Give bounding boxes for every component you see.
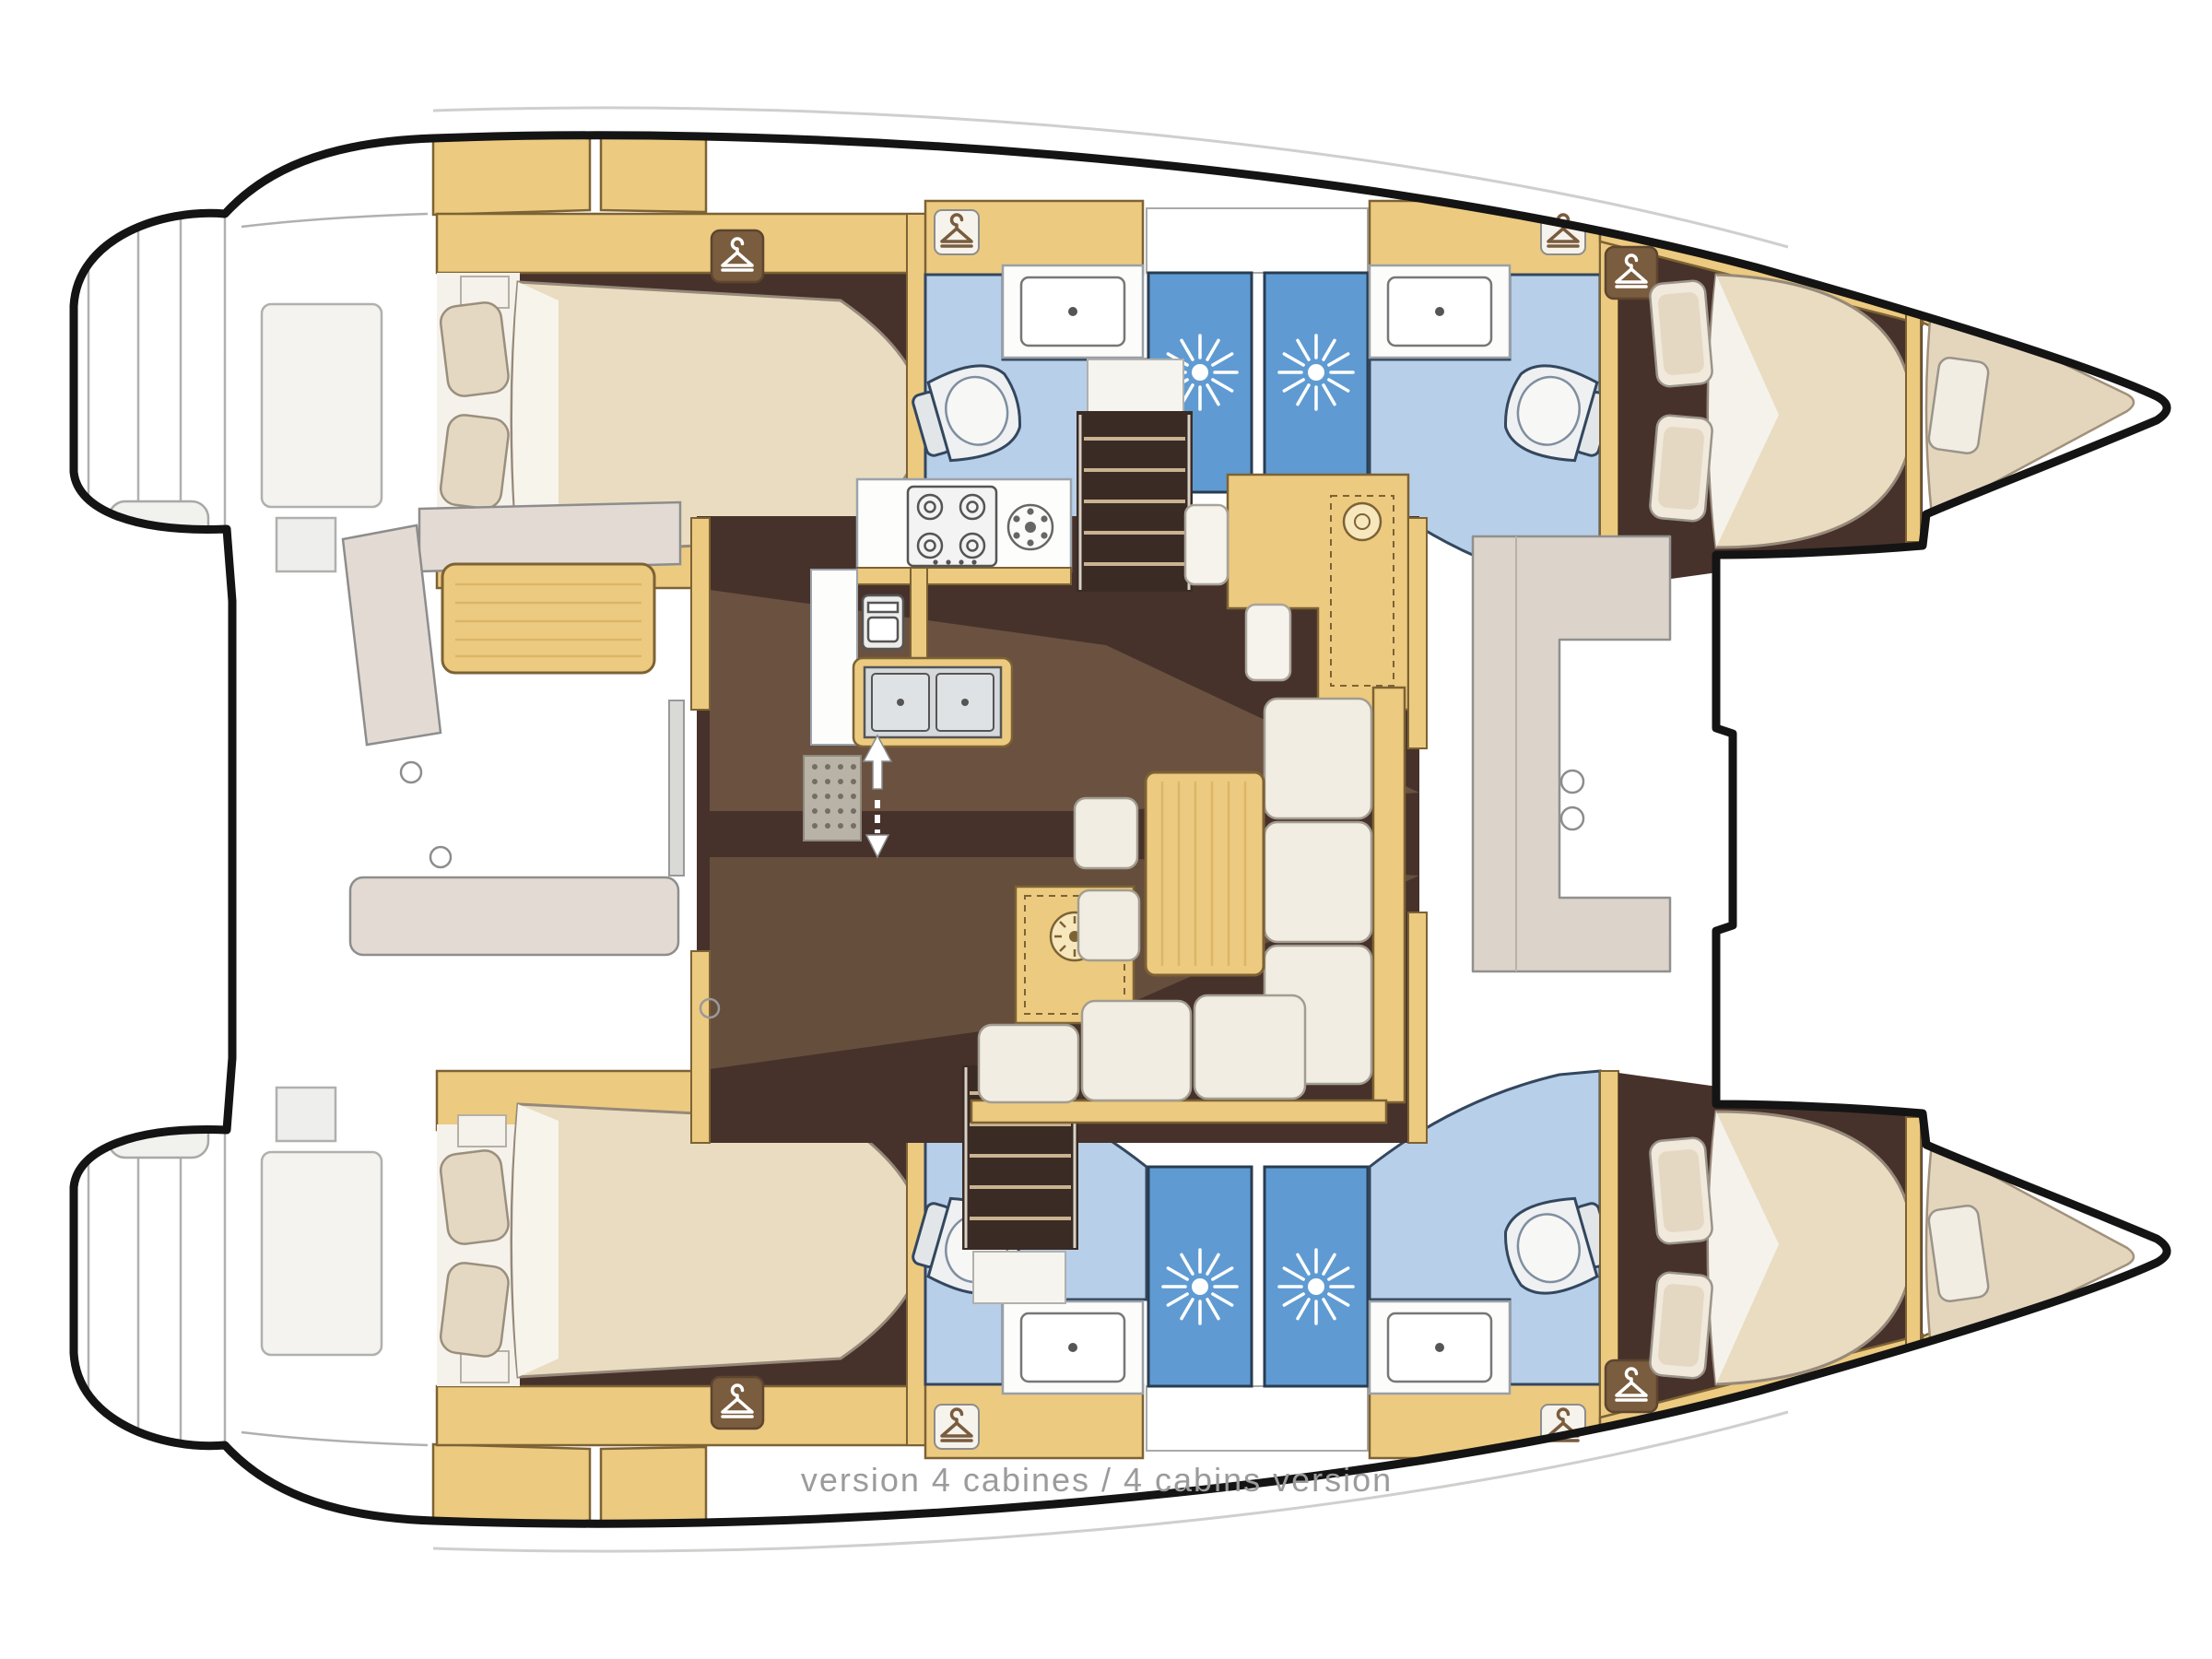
pillow <box>439 413 510 510</box>
forestay-bracket <box>2072 780 2088 879</box>
cupholder-icon <box>430 847 451 867</box>
salon-table <box>1146 772 1264 975</box>
forward-cockpit <box>1473 536 2088 1043</box>
pillow <box>439 300 510 397</box>
cupholder-icon <box>1561 771 1583 793</box>
instrument-icon <box>1344 503 1381 540</box>
deck-seam <box>1736 977 2046 1043</box>
caption-text: version 4 cabines / 4 cabins version <box>801 1461 1393 1499</box>
forepeak-bulkhead <box>1906 295 1921 542</box>
oven-icon <box>863 595 903 649</box>
drainer-mat <box>804 756 861 841</box>
sink-icon <box>1003 265 1143 358</box>
cockpit-table <box>442 564 654 673</box>
forward-salon-wall <box>1408 912 1427 1143</box>
pillow <box>1649 415 1713 523</box>
forward-salon-wall <box>1408 518 1427 748</box>
cockpit-bench <box>350 877 678 955</box>
forepeak-berth <box>1926 300 2134 516</box>
port-companionway-stairs <box>1077 359 1193 592</box>
wardrobe-locker <box>935 210 979 254</box>
galley-fiddle <box>857 568 1071 584</box>
galley-side-counter <box>811 570 857 745</box>
double-sink-icon <box>853 658 1012 747</box>
stool-cushion <box>1078 890 1139 960</box>
sofa-back <box>1373 688 1405 1102</box>
sliding-door <box>669 700 684 876</box>
cabin-shelf <box>437 214 924 273</box>
stool-cushion <box>1075 798 1137 868</box>
stove-burners-icon <box>908 487 996 566</box>
cupholder-icon <box>401 762 421 782</box>
pillow <box>1649 280 1713 388</box>
deck-seam <box>1736 616 2046 682</box>
floorplan-page: version 4 cabines / 4 cabins version <box>0 0 2212 1659</box>
aft-salon-wall <box>691 951 710 1143</box>
outboard-locker-band <box>433 135 706 215</box>
catamaran-floorplan: version 4 cabines / 4 cabins version <box>0 0 2212 1659</box>
round-burner-icon <box>1008 505 1053 549</box>
cockpit-bench <box>419 502 680 571</box>
nav-seat <box>1185 505 1228 584</box>
nav-seat <box>1246 605 1290 680</box>
sofa-base <box>971 1100 1386 1123</box>
shower-stall <box>1265 273 1368 492</box>
sink-icon <box>1370 265 1510 358</box>
aft-salon-wall <box>691 518 710 710</box>
cupholder-icon <box>1561 807 1583 829</box>
